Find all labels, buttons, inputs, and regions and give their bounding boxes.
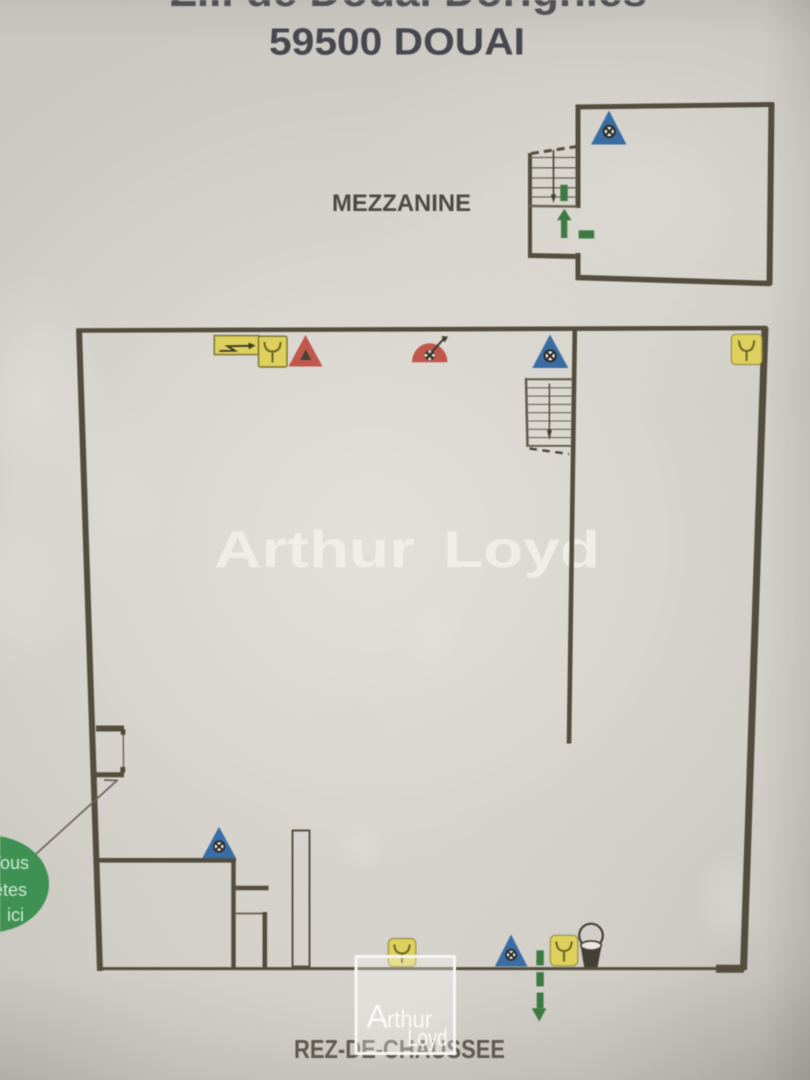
svg-text:59500 DOUAI: 59500 DOUAI [269, 22, 525, 64]
svg-text:Vous: Vous [0, 853, 29, 873]
svg-text:MEZZANINE: MEZZANINE [332, 190, 471, 217]
svg-text:Z.I. de Douai Dorignies: Z.I. de Douai Dorignies [170, 0, 647, 16]
svg-text:Loyd: Loyd [443, 520, 600, 579]
svg-text:A: A [367, 999, 389, 1035]
svg-text:ici: ici [7, 905, 24, 925]
svg-text:êtes: êtes [0, 880, 27, 900]
svg-text:Arthur: Arthur [214, 520, 415, 579]
svg-text:Loyd: Loyd [407, 1025, 447, 1052]
